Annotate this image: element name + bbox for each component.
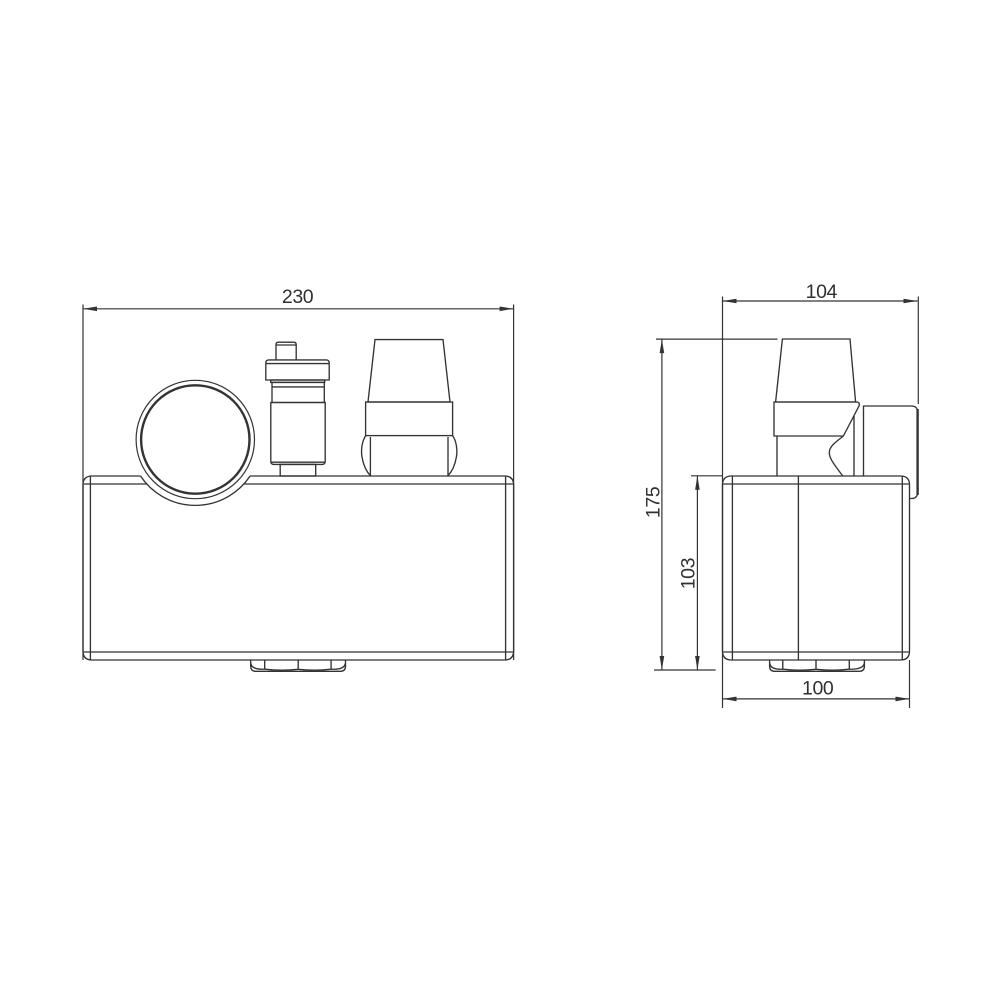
svg-text:104: 104 — [806, 281, 838, 303]
svg-text:100: 100 — [802, 677, 834, 699]
svg-text:175: 175 — [643, 486, 665, 518]
svg-text:103: 103 — [678, 558, 700, 589]
svg-text:230: 230 — [282, 286, 314, 308]
